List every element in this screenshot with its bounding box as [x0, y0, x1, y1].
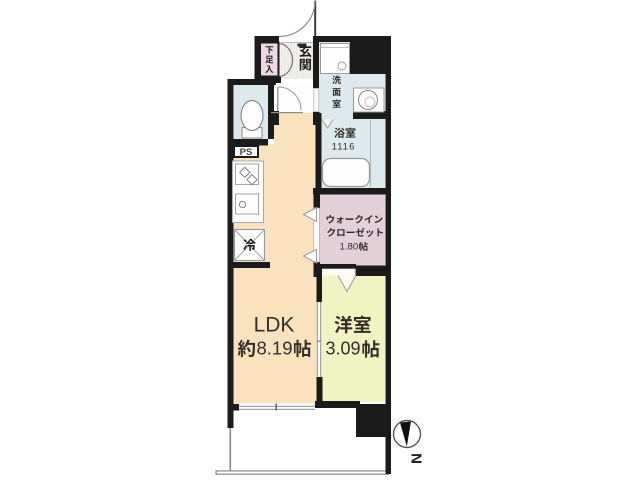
- svg-text:LDK: LDK: [254, 314, 295, 337]
- svg-text:1.80: 1.80: [340, 242, 359, 253]
- svg-text:1116: 1116: [332, 142, 356, 153]
- svg-text:PS: PS: [240, 147, 253, 158]
- svg-text:8.19: 8.19: [257, 338, 293, 359]
- svg-text:3.09: 3.09: [326, 339, 361, 359]
- svg-text:N: N: [408, 453, 425, 464]
